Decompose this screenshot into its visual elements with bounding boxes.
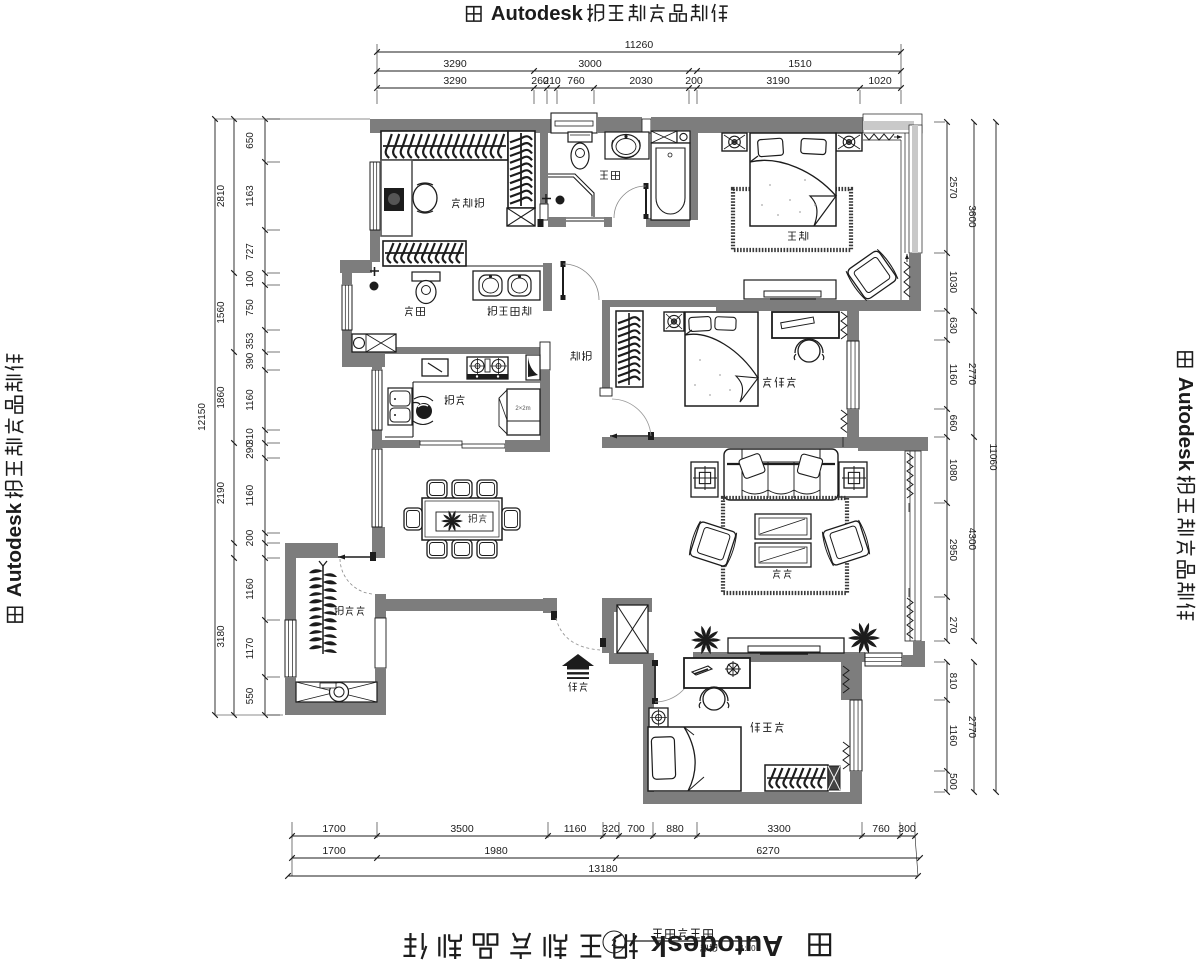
svg-text:760: 760 xyxy=(872,823,890,835)
svg-text:290: 290 xyxy=(245,442,256,459)
svg-text:12150: 12150 xyxy=(197,403,208,431)
svg-text:Autodesk: Autodesk xyxy=(491,3,584,25)
svg-text:2190: 2190 xyxy=(216,481,227,504)
svg-text:750: 750 xyxy=(245,299,256,316)
svg-text:700: 700 xyxy=(627,823,645,835)
svg-text:810: 810 xyxy=(947,673,958,690)
svg-text:2810: 2810 xyxy=(216,184,227,207)
svg-text:1163: 1163 xyxy=(245,185,256,207)
svg-text:3000: 3000 xyxy=(578,58,602,70)
svg-text:3180: 3180 xyxy=(216,625,227,648)
svg-text:2950: 2950 xyxy=(947,539,958,562)
svg-text:650: 650 xyxy=(245,132,256,149)
svg-text:2770: 2770 xyxy=(966,716,977,739)
svg-text:1700: 1700 xyxy=(322,823,346,835)
svg-text:1020: 1020 xyxy=(868,75,892,87)
svg-text:200: 200 xyxy=(685,75,703,87)
svg-text:1980: 1980 xyxy=(484,845,508,857)
svg-text:3190: 3190 xyxy=(766,75,790,87)
svg-text:13180: 13180 xyxy=(588,863,617,875)
svg-text:1170: 1170 xyxy=(245,637,256,659)
svg-text:550: 550 xyxy=(245,687,256,704)
svg-text:1030: 1030 xyxy=(947,271,958,294)
svg-text:2570: 2570 xyxy=(947,176,958,199)
svg-text:1160: 1160 xyxy=(245,484,256,506)
svg-text:Autodesk: Autodesk xyxy=(3,502,26,597)
svg-text:1:70: 1:70 xyxy=(740,944,756,953)
svg-text:3290: 3290 xyxy=(443,58,467,70)
svg-text:2770: 2770 xyxy=(966,363,977,386)
svg-text:2030: 2030 xyxy=(629,75,653,87)
svg-text:760: 760 xyxy=(567,75,585,87)
svg-text:1080: 1080 xyxy=(947,459,958,482)
svg-text:3500: 3500 xyxy=(450,823,474,835)
svg-text:11060: 11060 xyxy=(987,443,998,471)
svg-text:660: 660 xyxy=(947,415,958,432)
svg-text:630: 630 xyxy=(947,317,958,334)
svg-text:11260: 11260 xyxy=(625,39,654,51)
svg-text:1560: 1560 xyxy=(216,301,227,324)
svg-text:2×2m: 2×2m xyxy=(515,406,530,412)
svg-text:1160: 1160 xyxy=(245,578,256,600)
svg-text:353: 353 xyxy=(245,332,256,349)
svg-text:1700: 1700 xyxy=(322,845,346,857)
svg-text:200: 200 xyxy=(245,529,256,546)
svg-text:210: 210 xyxy=(543,75,561,87)
svg-text:727: 727 xyxy=(245,243,256,260)
svg-text:Autodesk: Autodesk xyxy=(1174,377,1197,472)
svg-text:270: 270 xyxy=(947,617,958,634)
svg-text:6270: 6270 xyxy=(756,845,780,857)
svg-text:880: 880 xyxy=(666,823,684,835)
svg-text:4300: 4300 xyxy=(966,528,977,551)
svg-text:300: 300 xyxy=(898,823,916,835)
svg-text:500: 500 xyxy=(947,773,958,790)
svg-text:1860: 1860 xyxy=(216,386,227,409)
svg-text:100: 100 xyxy=(245,270,256,287)
svg-text:1160: 1160 xyxy=(947,725,958,747)
svg-text:1160: 1160 xyxy=(947,364,958,386)
svg-text:1160: 1160 xyxy=(245,389,256,411)
svg-text:3300: 3300 xyxy=(767,823,791,835)
svg-text:3600: 3600 xyxy=(966,205,977,228)
svg-text:320: 320 xyxy=(602,823,620,835)
svg-text:3290: 3290 xyxy=(443,75,467,87)
svg-text:390: 390 xyxy=(245,352,256,369)
svg-text:1160: 1160 xyxy=(564,823,587,835)
svg-text:2: 2 xyxy=(611,938,617,949)
svg-text:1510: 1510 xyxy=(788,58,812,70)
